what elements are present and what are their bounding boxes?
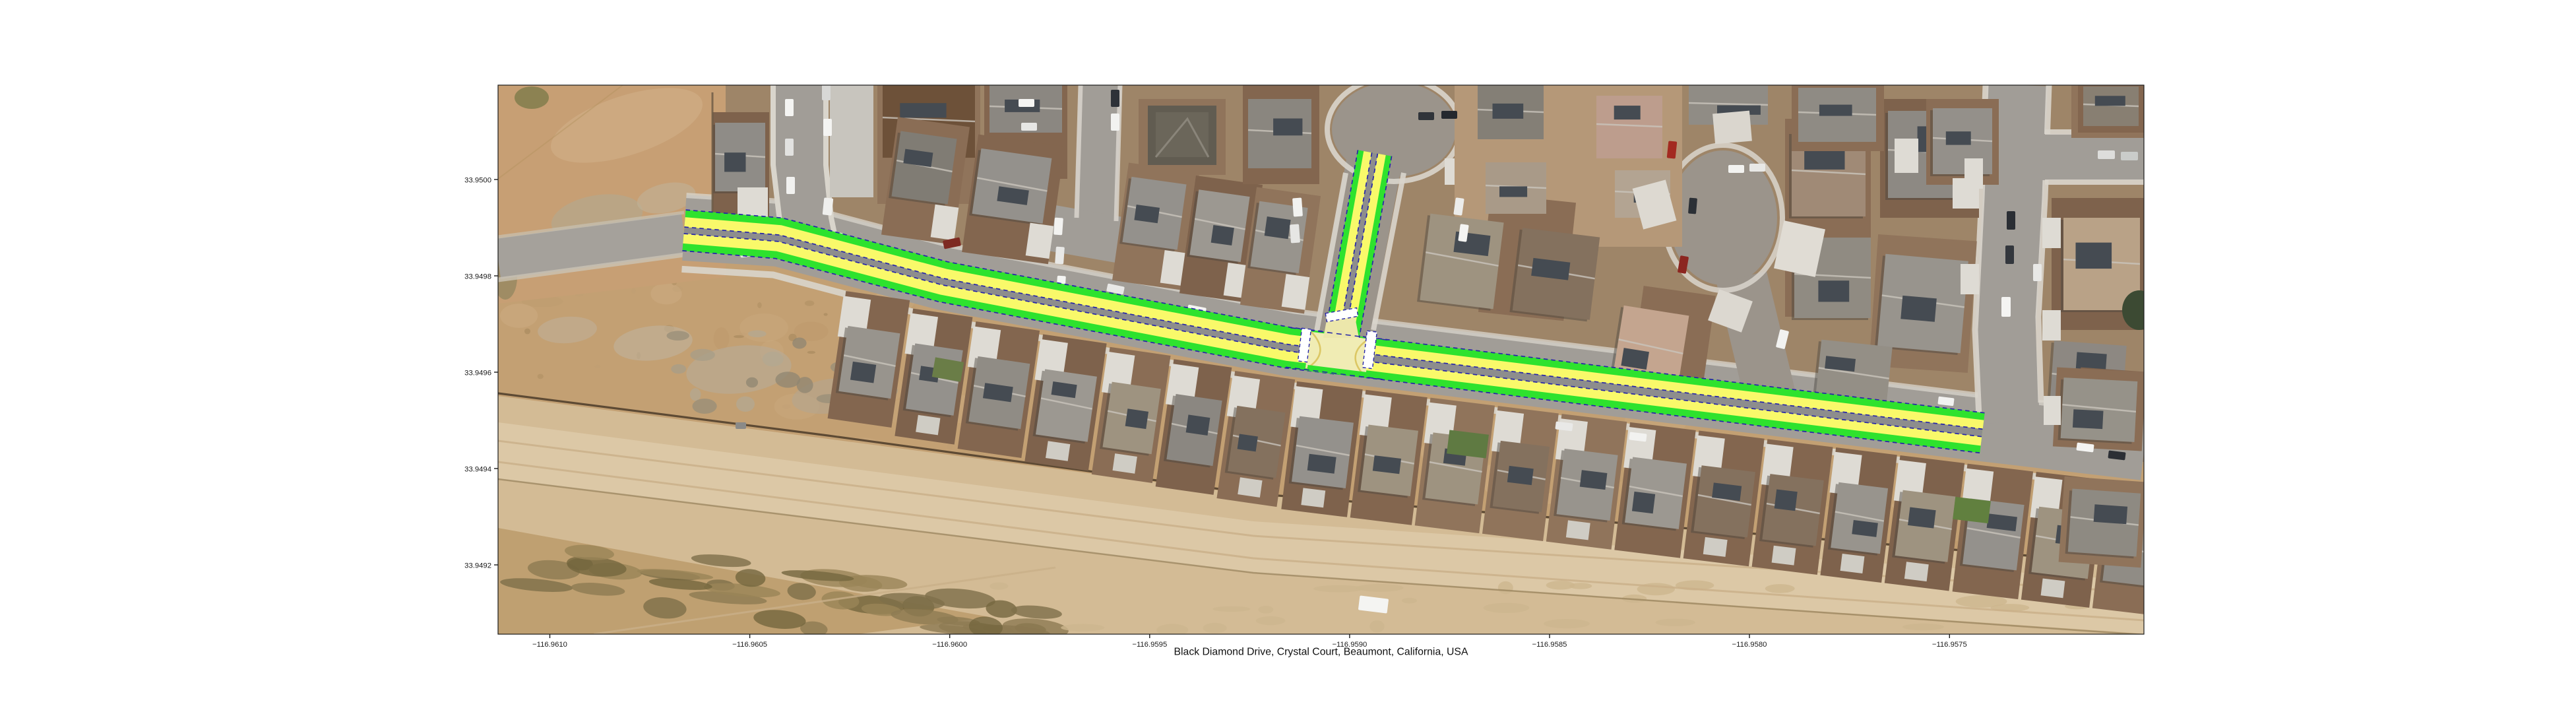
svg-text:−116.9595: −116.9595	[1132, 641, 1167, 649]
svg-text:−116.9605: −116.9605	[732, 641, 767, 649]
svg-text:−116.9585: −116.9585	[1532, 641, 1567, 649]
svg-text:−116.9610: −116.9610	[532, 641, 567, 649]
svg-text:33.9498: 33.9498	[464, 273, 491, 281]
svg-text:−116.9575: −116.9575	[1932, 641, 1967, 649]
svg-text:33.9496: 33.9496	[464, 370, 491, 377]
svg-text:Black Diamond Drive, Crystal C: Black Diamond Drive, Crystal Court, Beau…	[1174, 647, 1468, 658]
svg-text:33.9494: 33.9494	[464, 466, 491, 474]
svg-text:−116.9600: −116.9600	[932, 641, 967, 649]
svg-text:33.9492: 33.9492	[464, 562, 491, 570]
svg-text:33.9500: 33.9500	[464, 177, 491, 185]
svg-text:−116.9580: −116.9580	[1732, 641, 1767, 649]
